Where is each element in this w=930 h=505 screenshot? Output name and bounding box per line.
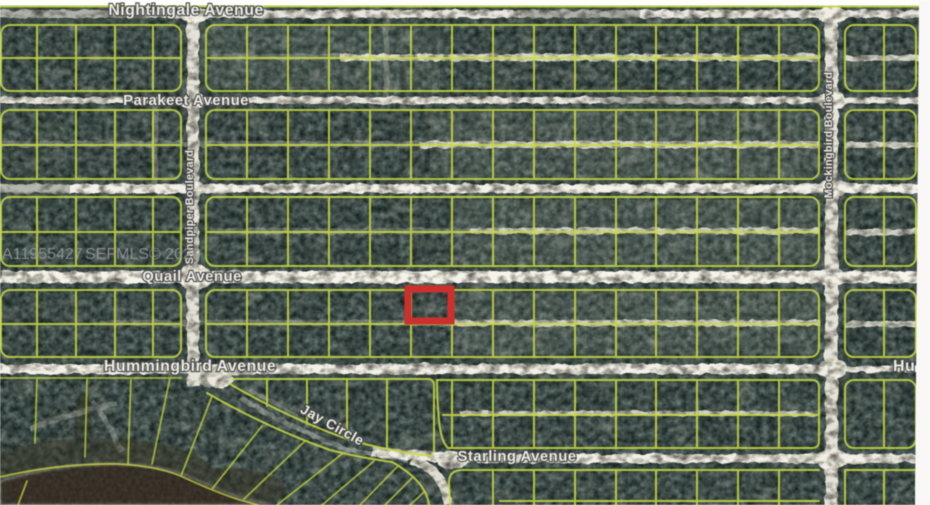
svg-text:SEFMLS© 2020: SEFMLS© 2020 [85, 246, 201, 263]
svg-text:Hu: Hu [893, 358, 915, 375]
svg-text:Mockingbird Boulevard: Mockingbird Boulevard [823, 72, 835, 198]
svg-text:Parakeet Avenue: Parakeet Avenue [123, 92, 249, 109]
svg-text:Starling Avenue: Starling Avenue [457, 448, 576, 465]
svg-text:Quail Avenue: Quail Avenue [142, 268, 242, 285]
svg-text:Hummingbird Avenue: Hummingbird Avenue [104, 358, 276, 375]
svg-text:A11955427: A11955427 [2, 246, 83, 263]
svg-text:Nightingale Avenue: Nightingale Avenue [108, 2, 263, 19]
